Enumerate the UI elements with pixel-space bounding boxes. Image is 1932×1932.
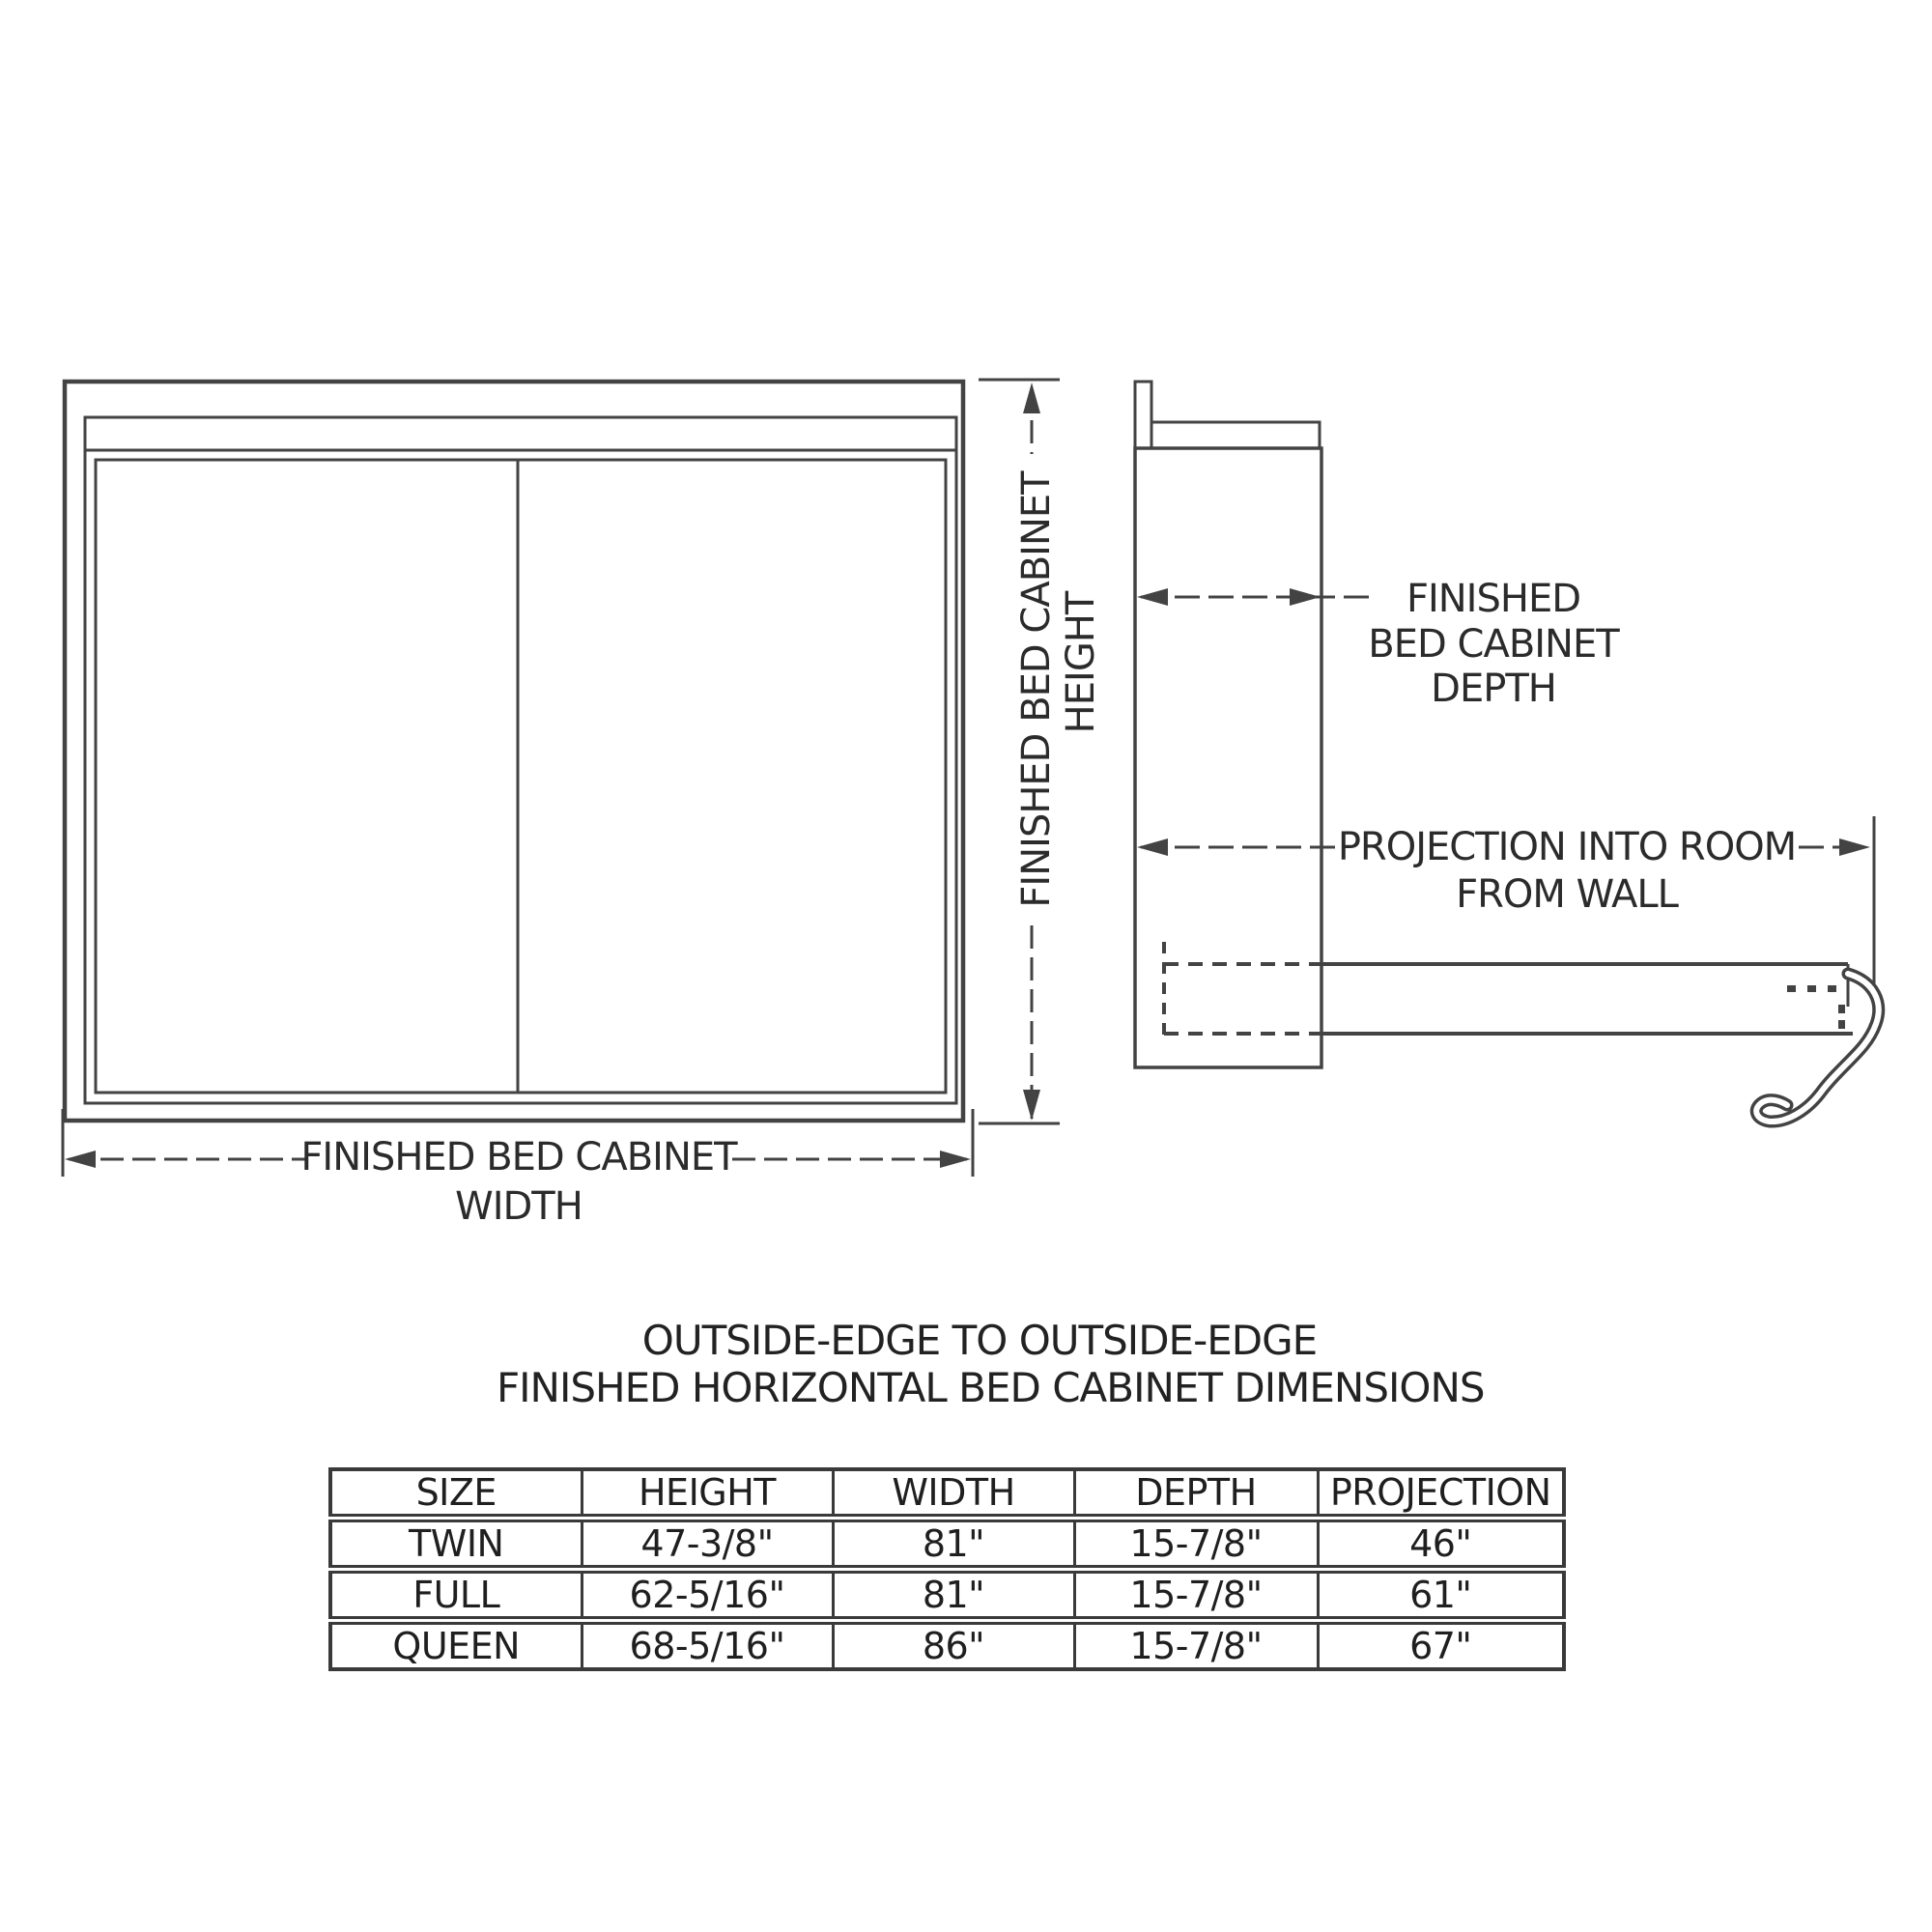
- cell-full-projection: 61": [1318, 1570, 1564, 1621]
- height-arrow-up: [1023, 383, 1040, 413]
- projection-label-line2: FROM WALL: [1456, 872, 1680, 917]
- front-cabinet-outline: [65, 382, 963, 1121]
- table-row-full: FULL 62-5/16" 81" 15-7/8" 61": [330, 1570, 1564, 1621]
- header-width: WIDTH: [833, 1469, 1074, 1519]
- table-title-line1: OUTSIDE-EDGE TO OUTSIDE-EDGE: [497, 1317, 1463, 1364]
- cell-full-depth: 15-7/8": [1074, 1570, 1318, 1621]
- side-wall-tab: [1135, 382, 1151, 448]
- width-arrow-left: [65, 1151, 96, 1168]
- width-arrow-right: [940, 1151, 971, 1168]
- depth-label-line2: BED CABINET: [1368, 622, 1620, 667]
- cell-queen-depth: 15-7/8": [1074, 1621, 1318, 1670]
- diagram-sheet: FINISHED BED CABINET HEIGHT FINISHED BED…: [0, 0, 1932, 1932]
- height-label-line1: FINISHED BED CABINET: [1014, 470, 1059, 908]
- front-view: [65, 382, 963, 1121]
- leg-hidden-dots: [1787, 985, 1845, 1029]
- projection-arrow-left: [1137, 838, 1168, 856]
- cell-twin-size: TWIN: [330, 1519, 582, 1570]
- header-size: SIZE: [330, 1469, 582, 1519]
- cell-twin-height: 47-3/8": [582, 1519, 833, 1570]
- projection-arrow-right: [1839, 838, 1870, 856]
- cell-full-height: 62-5/16": [582, 1570, 833, 1621]
- cell-full-size: FULL: [330, 1570, 582, 1621]
- width-label-line1: FINISHED BED CABINET: [300, 1135, 738, 1179]
- cell-twin-depth: 15-7/8": [1074, 1519, 1318, 1570]
- front-header-band: [85, 417, 956, 450]
- cell-twin-projection: 46": [1318, 1519, 1564, 1570]
- header-projection: PROJECTION: [1318, 1469, 1564, 1519]
- cell-full-width: 81": [833, 1570, 1074, 1621]
- height-arrow-down: [1023, 1090, 1040, 1121]
- table-row-queen: QUEEN 68-5/16" 86" 15-7/8" 67": [330, 1621, 1564, 1670]
- depth-arrow-left: [1137, 588, 1168, 606]
- side-top-ledge: [1151, 422, 1320, 448]
- depth-arrow-right: [1290, 588, 1321, 606]
- header-height: HEIGHT: [582, 1469, 833, 1519]
- side-cabinet-body: [1135, 448, 1321, 1067]
- cell-queen-size: QUEEN: [330, 1621, 582, 1670]
- height-label-line2: HEIGHT: [1059, 590, 1103, 733]
- cell-queen-projection: 67": [1318, 1621, 1564, 1670]
- projection-label-line1: PROJECTION INTO ROOM: [1338, 825, 1796, 869]
- cell-queen-width: 86": [833, 1621, 1074, 1670]
- table-title: OUTSIDE-EDGE TO OUTSIDE-EDGE FINISHED HO…: [497, 1317, 1463, 1411]
- front-door-frame-inner: [96, 460, 946, 1093]
- table-row-twin: TWIN 47-3/8" 81" 15-7/8" 46": [330, 1519, 1564, 1570]
- depth-label-line1: FINISHED: [1406, 577, 1580, 621]
- table-header-row: SIZE HEIGHT WIDTH DEPTH PROJECTION: [330, 1469, 1564, 1519]
- depth-dimension: [1137, 588, 1372, 606]
- table-title-line2: FINISHED HORIZONTAL BED CABINET DIMENSIO…: [497, 1364, 1463, 1411]
- front-door-frame-outer: [85, 450, 956, 1103]
- header-depth: DEPTH: [1074, 1469, 1318, 1519]
- cell-twin-width: 81": [833, 1519, 1074, 1570]
- bed-leg-hook-inner: [1756, 974, 1878, 1122]
- depth-label-line3: DEPTH: [1431, 667, 1556, 711]
- bed-platform: [1164, 942, 1879, 1122]
- cell-queen-height: 68-5/16": [582, 1621, 833, 1670]
- width-label-line2: WIDTH: [455, 1184, 582, 1229]
- dimensions-table: SIZE HEIGHT WIDTH DEPTH PROJECTION TWIN …: [328, 1467, 1566, 1671]
